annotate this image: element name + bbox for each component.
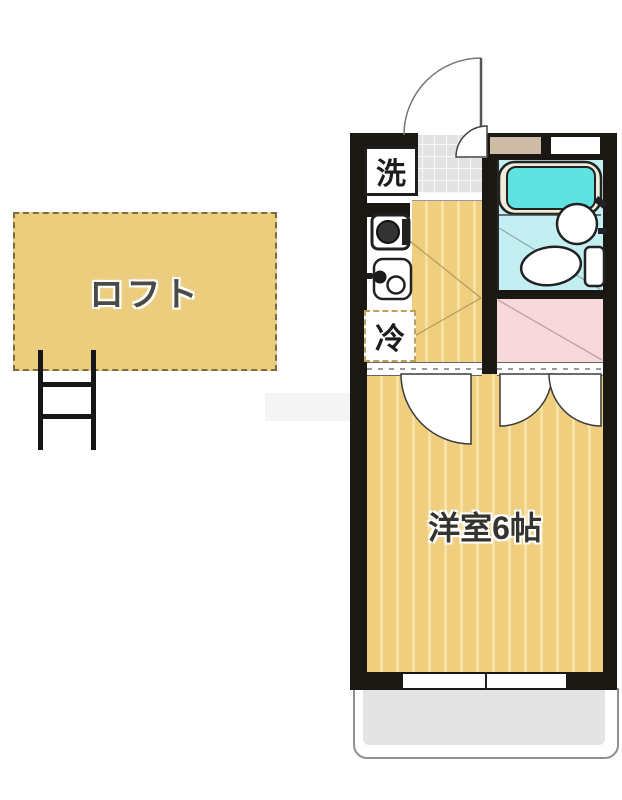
- stove-burner: [372, 215, 409, 249]
- kitchen-door-arc: [401, 374, 471, 444]
- wash-basin: [557, 204, 597, 244]
- laundry-label-box: 洗: [364, 146, 418, 196]
- main-room-label: 洋室6帖: [367, 503, 603, 549]
- kitchen-sink: [360, 259, 411, 299]
- closet-door-arcs: [500, 374, 601, 426]
- refrigerator-label: 冷: [375, 314, 405, 358]
- closet-diagonal-line: [498, 300, 602, 360]
- entry-door-arc: [404, 58, 481, 135]
- floorplan-page: { "title": "1K apartment floor plan with…: [0, 0, 622, 800]
- laundry-label: 洗: [376, 149, 406, 193]
- fixtures-overlay: [0, 0, 622, 800]
- bathroom-door-arc: [456, 126, 487, 157]
- toilet: [519, 243, 604, 289]
- refrigerator-label-box: 冷: [364, 310, 416, 362]
